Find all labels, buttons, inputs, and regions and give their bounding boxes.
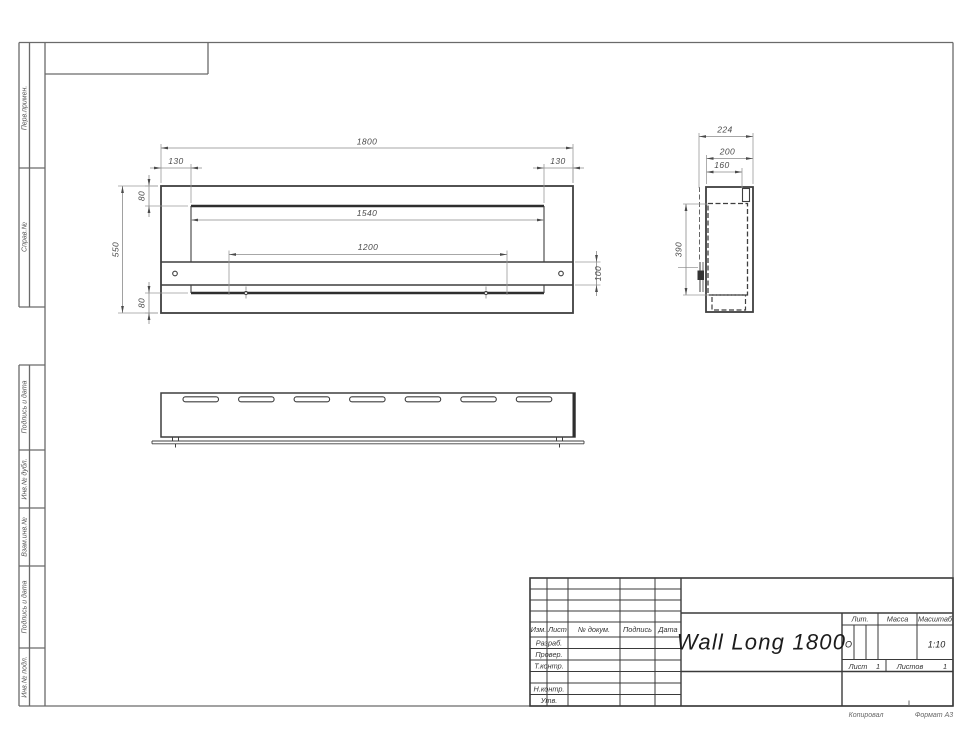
dimension-label: 1200	[358, 242, 379, 252]
dimension-label: 224	[716, 125, 732, 135]
mount-hole-right	[559, 271, 564, 276]
dimension: 130	[533, 156, 584, 203]
sidebar-label-podpis-data-2: Подпись и дата	[21, 580, 29, 633]
tb-lit-value: О	[845, 640, 852, 650]
sidebar-label-podpis-data-1: Подпись и дата	[21, 380, 29, 433]
dimension-label: 130	[550, 156, 565, 166]
dimension: 1200	[229, 242, 507, 295]
dimension-label: 100	[593, 266, 603, 281]
tb-row-tkontr: Т.контр.	[534, 662, 563, 671]
bottom-view-slots	[183, 397, 552, 402]
document-title: Wall Long 1800	[677, 630, 846, 655]
side-stamp-labels: Перв.примен. Справ.№ Подпись и дата Инв.…	[21, 86, 29, 698]
vent-slot	[350, 397, 386, 402]
footer-annotations: Копировал Формат А3	[849, 712, 954, 719]
dimension-label: 200	[719, 147, 735, 157]
drawing-canvas: Перв.примен. Справ.№ Подпись и дата Инв.…	[0, 0, 970, 749]
drawing-sheet: Перв.примен. Справ.№ Подпись и дата Инв.…	[0, 0, 970, 749]
dimension-label: 1800	[357, 137, 378, 147]
side-hidden-box	[708, 204, 748, 296]
tb-sheets-value: 1	[943, 662, 947, 671]
corner-designation-box	[45, 43, 208, 75]
sidebar-label-perv-primen: Перв.примен.	[22, 86, 29, 131]
side-top-notch	[743, 189, 750, 202]
vent-slot	[405, 397, 441, 402]
tb-sheets-label: Листов	[896, 662, 924, 671]
dimension: 100	[575, 251, 603, 296]
dimension-label: 1540	[357, 208, 378, 218]
vent-slot	[294, 397, 330, 402]
tb-row-nkontr: Н.контр.	[534, 685, 565, 694]
sidebar-label-vzam-inv: Взам.инв.№	[22, 517, 29, 557]
dimension-label: 550	[111, 242, 121, 257]
copied-label: Копировал	[849, 712, 884, 719]
sidebar-label-sprav-no: Справ.№	[22, 222, 29, 252]
dimension: 130	[150, 156, 202, 203]
tb-scale-value: 1:10	[928, 640, 946, 650]
tb-row-razrab: Разраб.	[536, 639, 562, 648]
tb-lit-label: Лит.	[850, 615, 868, 624]
vent-slot	[239, 397, 275, 402]
dimension-label: 80	[137, 191, 147, 201]
tb-mass-label: Масса	[887, 615, 909, 624]
sheet-frame	[19, 43, 953, 707]
vent-slot	[516, 397, 552, 402]
dimension-label: 80	[137, 298, 147, 308]
tb-col-list: Лист	[547, 625, 567, 634]
tb-col-izm: Изм.	[531, 625, 547, 634]
sidebar-label-inv-dubl: Инв.№ дубл.	[21, 458, 29, 499]
dimension: 1540	[191, 208, 544, 221]
vent-slot	[183, 397, 219, 402]
tb-col-podpis: Подпись	[623, 625, 652, 634]
dimension: 550	[111, 186, 159, 313]
dimension: 80	[137, 175, 189, 217]
tb-row-prover: Провер.	[535, 650, 562, 659]
dimension-label: 160	[714, 160, 729, 170]
side-view	[678, 187, 753, 312]
dimension: 80	[137, 282, 189, 324]
dimension-label: 130	[168, 156, 183, 166]
dimension-label: 390	[674, 242, 684, 257]
dimension: 160	[707, 160, 743, 188]
tb-sheet-value: 1	[876, 662, 880, 671]
mount-hole-left	[173, 271, 178, 276]
tb-col-docnum: № докум.	[578, 625, 610, 634]
format-label: Формат А3	[915, 712, 953, 719]
vent-slot	[461, 397, 497, 402]
tb-col-data: Дата	[657, 625, 677, 634]
sidebar-label-inv-podl: Инв.№ подл.	[21, 656, 29, 698]
tb-row-utv: Утв.	[540, 696, 558, 705]
side-hidden-tray	[712, 295, 746, 310]
bottom-view	[152, 393, 584, 448]
dimension: 1800	[161, 137, 573, 184]
tb-scale-label: Масштаб	[918, 615, 953, 624]
side-wall-bracket	[678, 262, 704, 292]
tb-sheet-label: Лист	[848, 662, 868, 671]
